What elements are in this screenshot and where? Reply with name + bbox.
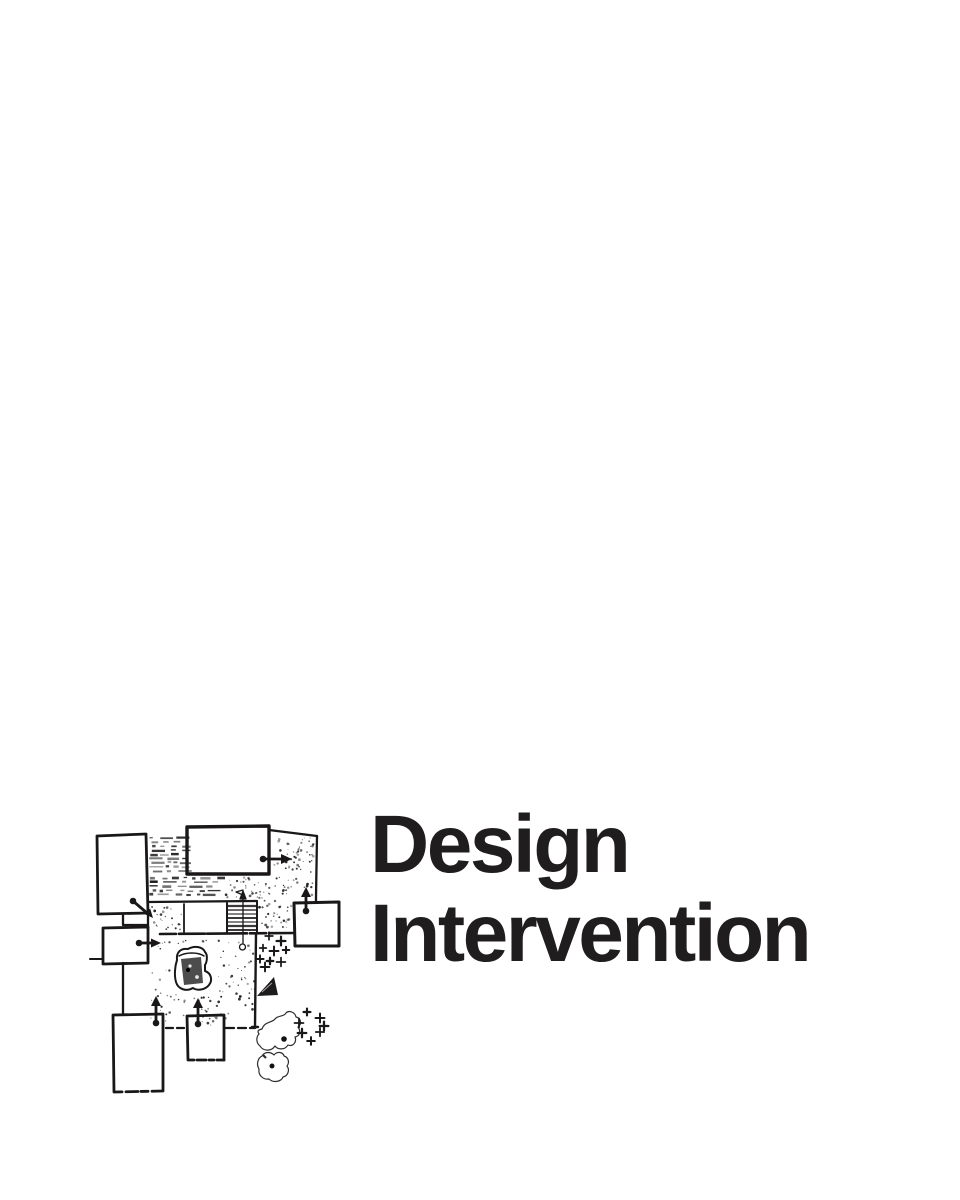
arrow-right-icon [151,939,161,948]
page-title: Design Intervention [370,800,809,978]
site-plan-sketch-svg [85,815,350,1105]
tree-blobs [257,1012,301,1082]
stair [227,902,257,933]
room-top-left [97,834,148,914]
flag-marker-icon [240,944,246,950]
stair-direction-arrow [236,890,246,950]
furniture-sketch [175,947,211,990]
arrow-up-icon [193,998,203,1008]
room-right [294,902,339,946]
site-plan-sketch [85,815,350,1105]
page-background: Design Intervention [0,0,960,1200]
room-bottom-left-dashed-edge [115,1091,162,1092]
arrow-up-icon [301,887,311,897]
triangle-mark [257,977,278,996]
room-bottom-center [187,1015,224,1060]
plan-rooms [97,826,339,1092]
arrow-up-icon [151,996,161,1006]
title-line-1: Design [370,800,809,889]
room-top-center [187,826,269,874]
title-line-2: Intervention [370,889,809,978]
stipple-hatch-texture [149,837,315,1025]
room-left-middle [103,927,148,964]
